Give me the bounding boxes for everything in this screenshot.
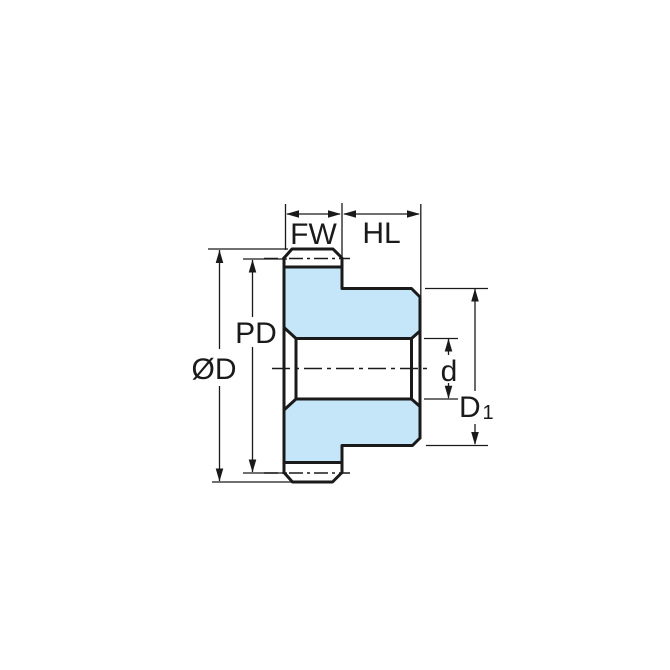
label-hub-diameter-subscript: 1	[483, 402, 494, 424]
arrowhead-fw-right	[328, 210, 341, 218]
arrowhead-od-down	[216, 469, 224, 482]
gear-cross-section-drawing: FW HL ØD PD d D 1	[0, 0, 670, 670]
label-hub-length: HL	[362, 217, 400, 250]
gear-body-lower	[284, 399, 420, 463]
arrowhead-pd-up	[249, 260, 257, 273]
label-bore-diameter: d	[441, 355, 458, 388]
gear-body-upper	[284, 267, 420, 339]
label-outer-diameter: ØD	[192, 353, 237, 386]
arrowhead-d1-up	[471, 289, 479, 302]
arrowhead-pd-down	[249, 460, 257, 473]
arrowhead-d-up	[445, 339, 453, 352]
arrowhead-d1-down	[471, 432, 479, 445]
arrowhead-od-up	[216, 250, 224, 263]
arrowhead-hl-left	[343, 210, 356, 218]
arrowhead-hl-right	[407, 210, 420, 218]
label-hub-diameter: D	[459, 391, 481, 424]
label-pitch-diameter: PD	[235, 317, 277, 350]
gear-dimension-diagram: FW HL ØD PD d D 1	[0, 0, 670, 670]
arrowhead-fw-left	[286, 210, 299, 218]
label-face-width: FW	[290, 218, 337, 251]
